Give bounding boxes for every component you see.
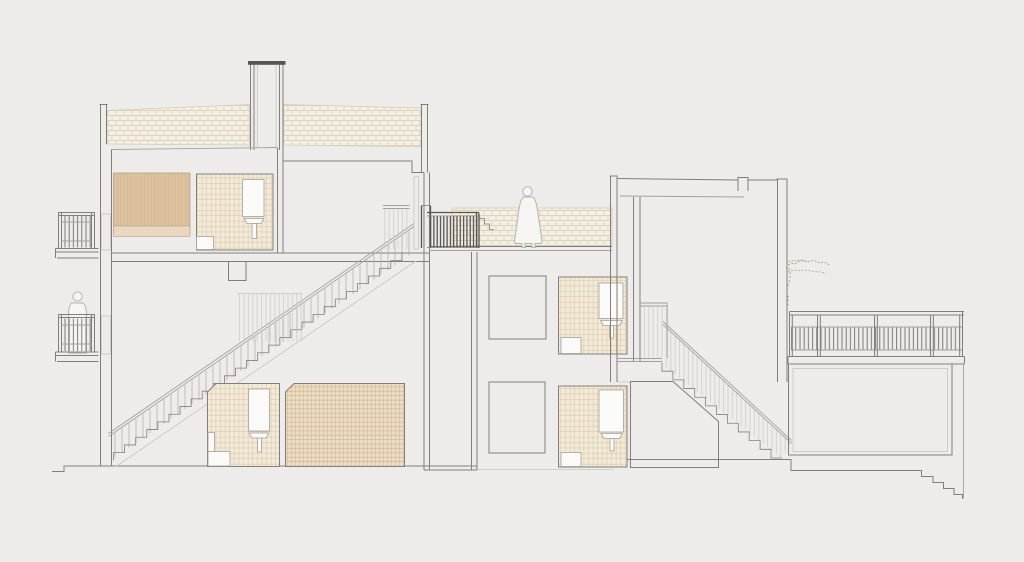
- hanging-plant: [786, 260, 829, 306]
- roof-insulation-band-right: [284, 105, 422, 147]
- left-wall: [101, 144, 112, 466]
- washbasin: [249, 433, 269, 438]
- mirror: [599, 390, 624, 432]
- middle-section: [421, 187, 627, 470]
- washbasin: [244, 219, 264, 224]
- parapet-right: [421, 105, 429, 173]
- stair-balusters: [662, 325, 791, 458]
- lower-wing-inner: [793, 369, 948, 452]
- plain-room-lower: [489, 382, 545, 453]
- shower-tray: [561, 338, 581, 354]
- floor-beam: [229, 262, 247, 281]
- basin-pedestal: [252, 224, 257, 239]
- bathroom-upper-left: [197, 174, 274, 250]
- mirror: [249, 389, 270, 431]
- bathroom-lower-left: [208, 384, 280, 467]
- basin-pedestal: [258, 438, 262, 452]
- tiled-room-lower: [286, 384, 405, 467]
- plain-room-upper: [489, 276, 546, 339]
- chimney: [248, 61, 286, 150]
- juliet-balcony-lower: [56, 315, 99, 362]
- shower-tray: [208, 452, 230, 467]
- juliet-balcony-upper: [56, 213, 99, 259]
- ground-line-right-steps: [614, 460, 963, 500]
- left-building: [56, 61, 431, 470]
- balcony-slab: [788, 357, 965, 365]
- washbasin: [601, 434, 623, 439]
- parapet-left: [100, 105, 108, 145]
- flue-wall: [278, 148, 284, 254]
- basin-pedestal: [610, 439, 614, 452]
- terrace-dark-railing: [421, 206, 479, 249]
- washbasin: [601, 321, 623, 326]
- section-drawing: [0, 0, 1024, 562]
- shower-tray: [197, 237, 214, 250]
- door-opening-upper: [102, 214, 111, 250]
- elevator-shaft: [424, 252, 477, 470]
- terrace-door-leaf: [414, 177, 419, 250]
- lower-wing-room: [789, 364, 953, 455]
- door-strip: [208, 433, 215, 452]
- door-opening-lower: [102, 316, 111, 354]
- interior-ceiling: [620, 196, 744, 197]
- eave-profile-right: [284, 161, 425, 173]
- mirror: [243, 180, 265, 217]
- stairwell-wall: [634, 197, 641, 361]
- background-flight-railing: [238, 294, 303, 342]
- ground-terrain: [52, 460, 963, 500]
- long-balcony-railing: [790, 312, 965, 357]
- bathroom-middle-lower: [559, 386, 628, 467]
- stair-top-guard: [383, 206, 410, 250]
- roof-insulation-band-left: [107, 105, 250, 146]
- shower-tray: [561, 453, 581, 467]
- architectural-section-canvas: [0, 0, 1024, 562]
- stair-handrail: [663, 322, 792, 444]
- right-building: [610, 176, 965, 499]
- bedroom-wardrobe: [114, 173, 191, 237]
- interior-staircase: [662, 322, 792, 459]
- terrace-figure: [514, 187, 542, 248]
